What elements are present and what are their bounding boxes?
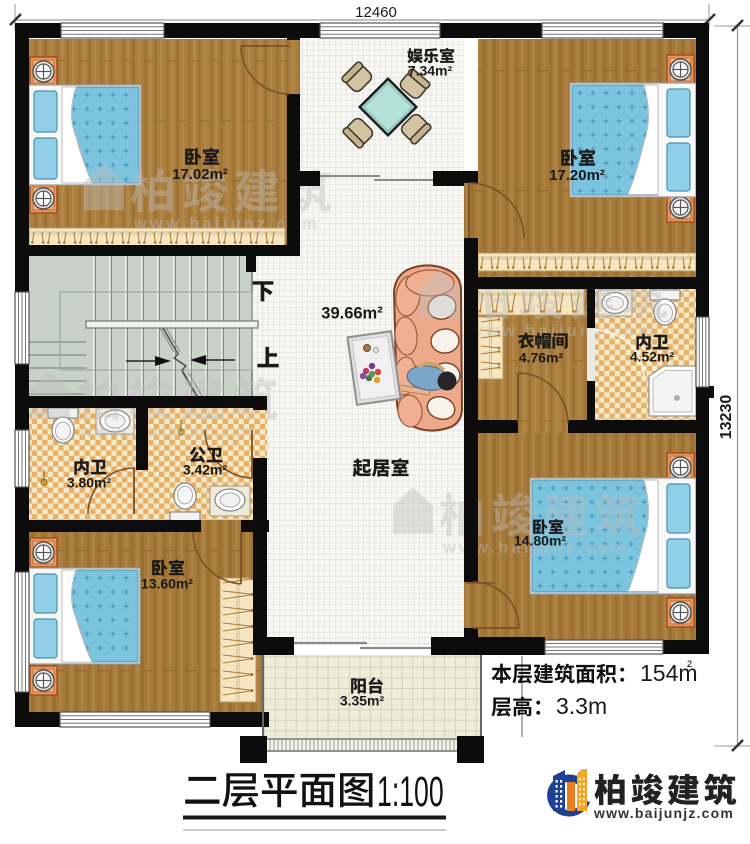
svg-text:39.66m²: 39.66m² <box>321 304 383 322</box>
svg-text:www.baijunjz.com: www.baijunjz.com <box>593 805 734 821</box>
svg-text:3.35m²: 3.35m² <box>340 693 385 709</box>
svg-text:www.baijunz.com: www.baijunz.com <box>79 423 266 441</box>
svg-text:3.3m: 3.3m <box>556 693 607 719</box>
svg-text:7.34m²: 7.34m² <box>408 63 453 79</box>
svg-text:17.20m²: 17.20m² <box>549 167 605 184</box>
svg-text:14.80m²: 14.80m² <box>514 533 566 549</box>
svg-text:13.60m²: 13.60m² <box>141 576 193 592</box>
svg-text:²: ² <box>687 658 692 675</box>
svg-text:3.42m²: 3.42m² <box>183 462 228 478</box>
svg-text:www.baijunz.com: www.baijunz.com <box>469 322 656 340</box>
svg-text:3.80m²: 3.80m² <box>67 475 112 491</box>
svg-text:4.76m²: 4.76m² <box>519 350 564 366</box>
svg-text:1:100: 1:100 <box>377 768 444 816</box>
svg-text:12460: 12460 <box>355 4 397 21</box>
svg-text:17.02m²: 17.02m² <box>172 166 228 183</box>
svg-text:13230: 13230 <box>718 395 735 440</box>
svg-text:4.52m²: 4.52m² <box>630 349 675 365</box>
